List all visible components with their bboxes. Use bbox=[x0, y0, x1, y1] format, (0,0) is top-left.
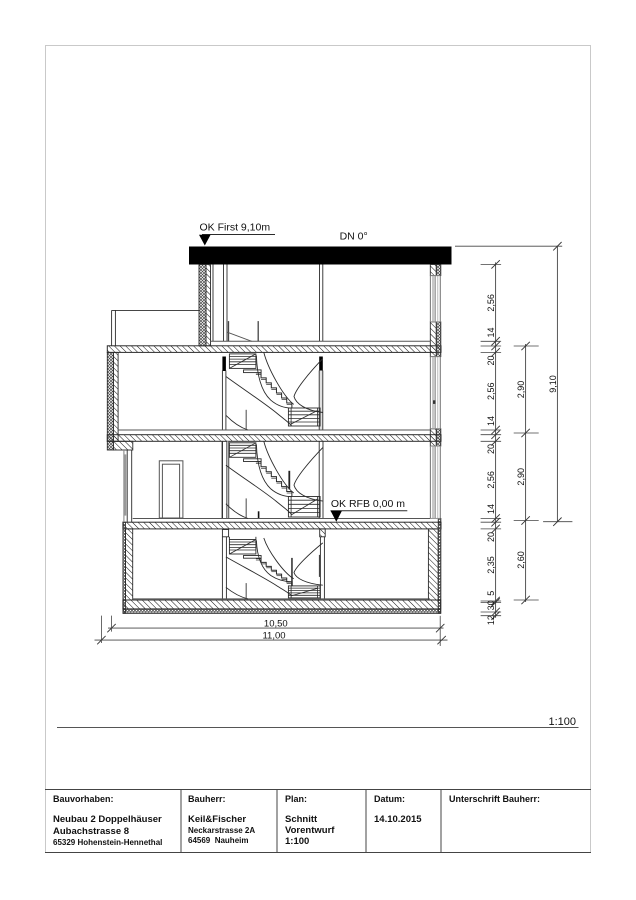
svg-text:Datum:: Datum: bbox=[374, 794, 405, 804]
svg-text:14.10.2015: 14.10.2015 bbox=[374, 814, 422, 825]
svg-text:Vorentwurf: Vorentwurf bbox=[285, 825, 335, 836]
svg-text:OK First 9,10m: OK First 9,10m bbox=[200, 222, 271, 234]
svg-text:2,56: 2,56 bbox=[486, 382, 496, 400]
svg-text:2,90: 2,90 bbox=[516, 468, 526, 486]
svg-text:14: 14 bbox=[486, 327, 496, 337]
svg-text:2,56: 2,56 bbox=[486, 471, 496, 489]
svg-text:20: 20 bbox=[486, 355, 496, 365]
svg-text:Schnitt: Schnitt bbox=[285, 814, 318, 825]
svg-text:Neubau 2 Doppelhäuser: Neubau 2 Doppelhäuser bbox=[53, 814, 162, 825]
svg-text:1:100: 1:100 bbox=[285, 836, 309, 847]
svg-text:20: 20 bbox=[486, 444, 496, 454]
svg-text:12: 12 bbox=[486, 615, 496, 625]
svg-text:1:100: 1:100 bbox=[548, 716, 576, 728]
svg-text:DN 0°: DN 0° bbox=[340, 231, 368, 243]
svg-text:65329 Hohenstein-Hennethal: 65329 Hohenstein-Hennethal bbox=[53, 838, 162, 847]
svg-text:14: 14 bbox=[486, 416, 496, 426]
svg-text:Aubachstrasse 8: Aubachstrasse 8 bbox=[53, 826, 129, 837]
svg-text:9,10: 9,10 bbox=[548, 375, 558, 393]
svg-text:Bauvorhaben:: Bauvorhaben: bbox=[53, 794, 114, 804]
svg-text:Plan:: Plan: bbox=[285, 794, 307, 804]
svg-text:Keil&Fischer: Keil&Fischer bbox=[188, 814, 246, 825]
svg-text:64569 Nauheim: 64569 Nauheim bbox=[188, 836, 248, 845]
svg-text:Neckarstrasse 2A: Neckarstrasse 2A bbox=[188, 826, 255, 835]
svg-text:2,56: 2,56 bbox=[486, 294, 496, 312]
svg-text:2,90: 2,90 bbox=[516, 381, 526, 399]
svg-text:14: 14 bbox=[486, 504, 496, 514]
svg-text:10,50: 10,50 bbox=[264, 618, 288, 629]
svg-text:30: 30 bbox=[486, 600, 496, 610]
svg-text:5: 5 bbox=[486, 591, 496, 596]
svg-text:OK RFB 0,00 m: OK RFB 0,00 m bbox=[331, 498, 405, 510]
svg-text:11,00: 11,00 bbox=[262, 630, 285, 641]
svg-text:2,60: 2,60 bbox=[516, 551, 526, 569]
svg-text:Unterschrift Bauherr:: Unterschrift Bauherr: bbox=[449, 794, 540, 804]
svg-text:Bauherr:: Bauherr: bbox=[188, 794, 226, 804]
svg-text:2,35: 2,35 bbox=[486, 556, 496, 574]
svg-text:20: 20 bbox=[486, 532, 496, 542]
